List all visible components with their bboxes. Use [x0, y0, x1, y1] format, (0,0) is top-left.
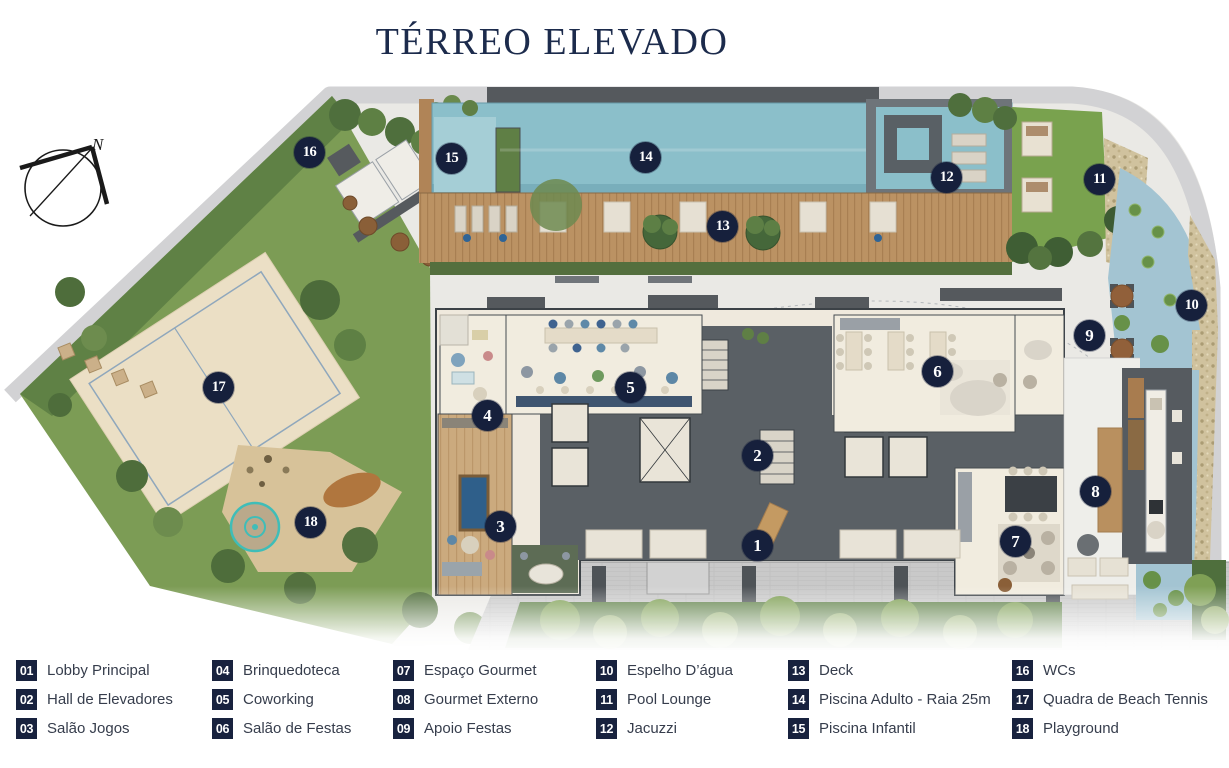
plan-marker-10: 10 — [1176, 290, 1207, 321]
legend-column-3: 07 Espaço Gourmet 08 Gourmet Externo 09 … — [393, 660, 538, 747]
legend-item-05: 05 Coworking — [212, 689, 351, 710]
legend-label: Apoio Festas — [424, 720, 512, 737]
plan-marker-8: 8 — [1080, 476, 1111, 507]
legend-number-badge: 18 — [1012, 718, 1033, 739]
legend-label: Playground — [1043, 720, 1119, 737]
legend-label: Quadra de Beach Tennis — [1043, 691, 1208, 708]
legend-label: Piscina Infantil — [819, 720, 916, 737]
legend-number-badge: 04 — [212, 660, 233, 681]
legend-label: Hall de Elevadores — [47, 691, 173, 708]
plan-marker-1: 1 — [742, 530, 773, 561]
legend-item-13: 13 Deck — [788, 660, 991, 681]
legend-item-02: 02 Hall de Elevadores — [16, 689, 173, 710]
plan-marker-18: 18 — [295, 507, 326, 538]
legend-item-17: 17 Quadra de Beach Tennis — [1012, 689, 1208, 710]
bottom-fade — [0, 586, 1229, 656]
legend-number-badge: 09 — [393, 718, 414, 739]
plan-marker-15: 15 — [436, 143, 467, 174]
legend-label: Brinquedoteca — [243, 662, 340, 679]
plan-marker-16: 16 — [294, 137, 325, 168]
legend-number-badge: 15 — [788, 718, 809, 739]
legend-label: Espaço Gourmet — [424, 662, 537, 679]
plan-marker-6: 6 — [922, 356, 953, 387]
legend-column-5: 13 Deck 14 Piscina Adulto - Raia 25m 15 … — [788, 660, 991, 747]
legend-number-badge: 06 — [212, 718, 233, 739]
legend-item-09: 09 Apoio Festas — [393, 718, 538, 739]
legend-item-16: 16 WCs — [1012, 660, 1208, 681]
legend-number-badge: 03 — [16, 718, 37, 739]
legend-number-badge: 07 — [393, 660, 414, 681]
legend-number-badge: 17 — [1012, 689, 1033, 710]
legend-item-03: 03 Salão Jogos — [16, 718, 173, 739]
legend-item-06: 06 Salão de Festas — [212, 718, 351, 739]
legend-item-04: 04 Brinquedoteca — [212, 660, 351, 681]
legend-label: Salão Jogos — [47, 720, 130, 737]
legend-label: Pool Lounge — [627, 691, 711, 708]
legend-column-4: 10 Espelho D’água 11 Pool Lounge 12 Jacu… — [596, 660, 733, 747]
legend-number-badge: 11 — [596, 689, 617, 710]
gourmet-externo-zone — [1064, 326, 1214, 620]
legend-label: Gourmet Externo — [424, 691, 538, 708]
plan-marker-4: 4 — [472, 400, 503, 431]
legend-item-14: 14 Piscina Adulto - Raia 25m — [788, 689, 991, 710]
page: TÉRREO ELEVADO N — [0, 0, 1229, 768]
legend-item-15: 15 Piscina Infantil — [788, 718, 991, 739]
legend-number-badge: 12 — [596, 718, 617, 739]
legend-label: Jacuzzi — [627, 720, 677, 737]
legend-item-07: 07 Espaço Gourmet — [393, 660, 538, 681]
plan-marker-7: 7 — [1000, 526, 1031, 557]
legend-label: Lobby Principal — [47, 662, 150, 679]
plan-marker-9: 9 — [1074, 320, 1105, 351]
legend-item-11: 11 Pool Lounge — [596, 689, 733, 710]
legend-number-badge: 14 — [788, 689, 809, 710]
plan-marker-11: 11 — [1084, 164, 1115, 195]
plan-marker-5: 5 — [615, 372, 646, 403]
legend-number-badge: 01 — [16, 660, 37, 681]
legend-number-badge: 02 — [16, 689, 37, 710]
legend-item-18: 18 Playground — [1012, 718, 1208, 739]
legend-number-badge: 10 — [596, 660, 617, 681]
legend-label: Espelho D’água — [627, 662, 733, 679]
legend-number-badge: 13 — [788, 660, 809, 681]
legend-label: Deck — [819, 662, 853, 679]
plan-marker-13: 13 — [707, 211, 738, 242]
plan-marker-14: 14 — [630, 142, 661, 173]
legend-column-2: 04 Brinquedoteca 05 Coworking 06 Salão d… — [212, 660, 351, 747]
legend-number-badge: 16 — [1012, 660, 1033, 681]
legend-number-badge: 08 — [393, 689, 414, 710]
legend-label: Piscina Adulto - Raia 25m — [819, 691, 991, 708]
legend-column-1: 01 Lobby Principal 02 Hall de Elevadores… — [16, 660, 173, 747]
legend-column-6: 16 WCs 17 Quadra de Beach Tennis 18 Play… — [1012, 660, 1208, 747]
legend-item-10: 10 Espelho D’água — [596, 660, 733, 681]
legend-label: Salão de Festas — [243, 720, 351, 737]
legend-item-01: 01 Lobby Principal — [16, 660, 173, 681]
legend-label: Coworking — [243, 691, 314, 708]
plan-marker-3: 3 — [485, 511, 516, 542]
plan-marker-17: 17 — [203, 372, 234, 403]
plan-marker-12: 12 — [931, 162, 962, 193]
legend-number-badge: 05 — [212, 689, 233, 710]
plan-marker-2: 2 — [742, 440, 773, 471]
legend-item-12: 12 Jacuzzi — [596, 718, 733, 739]
legend-label: WCs — [1043, 662, 1076, 679]
legend-item-08: 08 Gourmet Externo — [393, 689, 538, 710]
